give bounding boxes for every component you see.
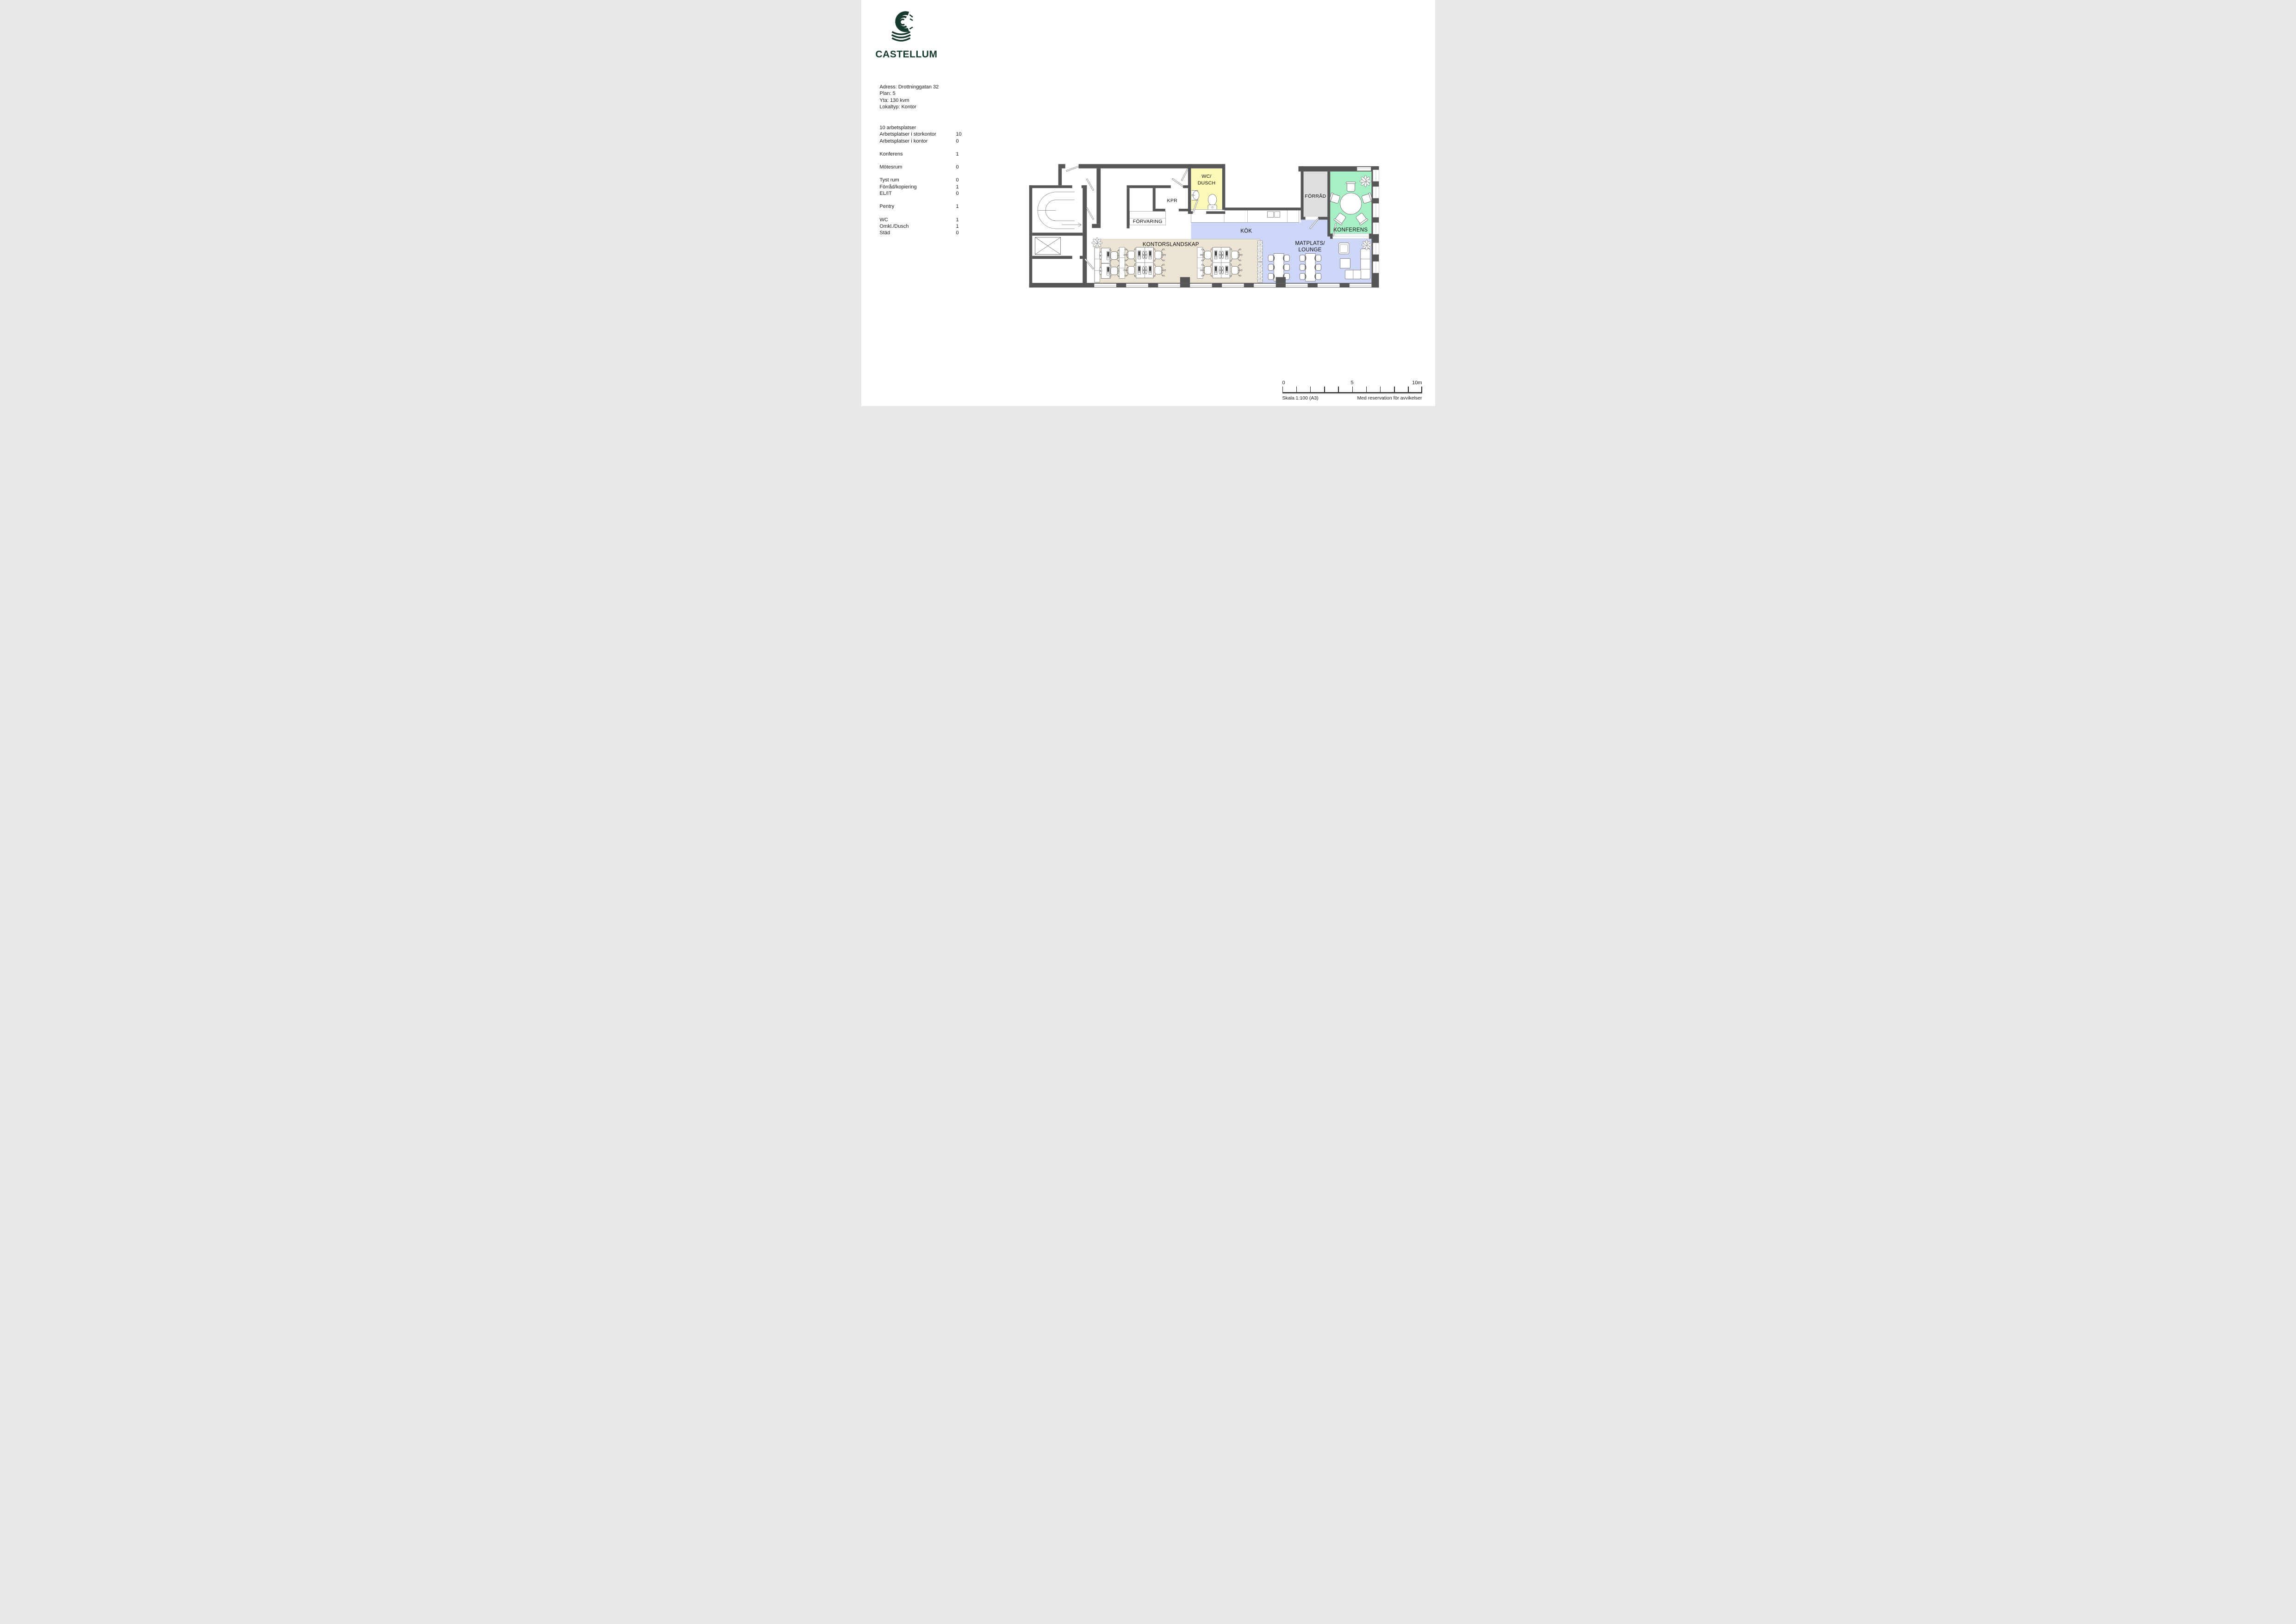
- label-wc-2: DUSCH: [1197, 180, 1215, 186]
- stat-row: Mötesrum 0: [880, 164, 996, 170]
- scale-mid: 5: [1350, 380, 1353, 386]
- floor-line: Plan: 5: [880, 90, 939, 97]
- label-kpr: KPR: [1167, 198, 1177, 203]
- scale-text: Skala 1:100 (A3): [1282, 395, 1319, 401]
- lounge-armchair: [1338, 243, 1349, 254]
- brand-block: CASTELLUM: [876, 7, 950, 60]
- label-matplats-1: MATPLATS/: [1295, 241, 1325, 246]
- floor-plan: KPR WC/ DUSCH FÖRVARING KÖK KONTORSLANDS…: [1027, 161, 1380, 290]
- elevator: [1035, 237, 1060, 255]
- label-wc-1: WC/: [1201, 174, 1211, 179]
- toilet-icon: [1208, 194, 1217, 210]
- stat-row: Pentry 1: [880, 203, 996, 210]
- label-forvaring: FÖRVARING: [1132, 219, 1162, 224]
- scale-ruler: [1282, 387, 1422, 393]
- entry-door: [1066, 166, 1078, 171]
- stairs: [1038, 192, 1081, 229]
- stat-row: WC 1: [880, 217, 996, 223]
- scale-bar: 0 5 10m Skala 1:100 (A3) Med reservation…: [1282, 380, 1422, 401]
- sink-icon: [1191, 190, 1199, 200]
- label-kontorslandskap: KONTORSLANDSKAP: [1142, 242, 1199, 248]
- stats-title: 10 arbetsplatser: [880, 125, 996, 131]
- room-statistics: 10 arbetsplatser Arbetsplatser i storkon…: [880, 125, 996, 243]
- stat-row: Tyst rum 0: [880, 177, 996, 183]
- stat-row: EL/IT 0: [880, 190, 996, 197]
- coffee-table: [1340, 259, 1350, 269]
- plant-icon: [1359, 175, 1371, 187]
- property-info: Adress: Drottninggatan 32 Plan: 5 Yta: 1…: [880, 84, 939, 110]
- scale-start: 0: [1282, 380, 1285, 386]
- stat-row: Konferens 1: [880, 151, 996, 157]
- floorplan-sheet: CASTELLUM Adress: Drottninggatan 32 Plan…: [861, 0, 1435, 406]
- label-forrad: FÖRRÅD: [1305, 193, 1326, 199]
- dining-table: [1300, 254, 1321, 281]
- stat-row: Förråd/kopiering 1: [880, 184, 996, 190]
- dining-table: [1268, 254, 1289, 281]
- stat-row: Städ 0: [880, 230, 996, 236]
- address-line: Adress: Drottninggatan 32: [880, 84, 939, 90]
- label-konferens: KONFERENS: [1333, 227, 1368, 233]
- stat-row: Arbetsplatser i kontor 0: [880, 138, 996, 144]
- area-line: Yta: 130 kvm: [880, 97, 939, 104]
- label-matplats-2: LOUNGE: [1298, 247, 1321, 253]
- type-line: Lokaltyp: Kontor: [880, 104, 939, 110]
- brand-wordmark: CASTELLUM: [876, 49, 950, 60]
- label-kok: KÖK: [1240, 229, 1252, 234]
- floor-plan-drawing: KPR WC/ DUSCH FÖRVARING KÖK KONTORSLANDS…: [1027, 161, 1380, 290]
- castellum-logo-icon: [888, 7, 915, 45]
- stat-row: Arbetsplatser i storkontor 10: [880, 131, 996, 137]
- scale-end: 10m: [1412, 380, 1422, 386]
- stat-row: Omkl./Dusch 1: [880, 223, 996, 230]
- plant-icon: [1361, 240, 1371, 250]
- disclaimer-text: Med reservation för avvikelser: [1357, 395, 1422, 401]
